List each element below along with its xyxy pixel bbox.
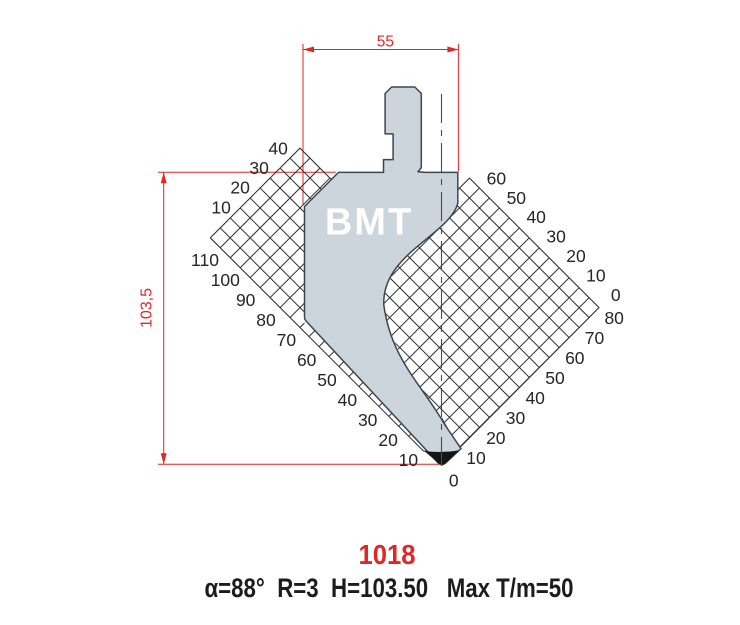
svg-text:40: 40 [525,388,545,408]
svg-text:80: 80 [604,308,624,328]
svg-text:110: 110 [191,250,219,270]
svg-text:70: 70 [585,328,605,348]
svg-text:30: 30 [358,410,378,430]
svg-text:80: 80 [256,310,276,330]
svg-text:103,5: 103,5 [139,288,156,328]
svg-text:10: 10 [466,448,486,468]
svg-text:20: 20 [378,430,398,450]
svg-text:10: 10 [211,197,231,217]
svg-text:40: 40 [268,139,288,159]
svg-text:1018: 1018 [359,539,416,570]
svg-text:60: 60 [565,348,585,368]
svg-text:α=88° R=3 H=103.50 Max T/m: α=88° R=3 H=103.50 Max T/m=50 [205,573,574,603]
svg-text:70: 70 [277,330,297,350]
svg-text:90: 90 [236,290,256,310]
svg-text:60: 60 [487,168,507,188]
svg-text:10: 10 [399,450,419,470]
svg-text:50: 50 [507,188,527,208]
svg-text:BMT: BMT [325,202,413,244]
svg-text:100: 100 [211,270,240,290]
svg-text:50: 50 [545,368,565,388]
svg-text:30: 30 [506,408,526,428]
svg-text:40: 40 [526,207,546,227]
svg-text:10: 10 [586,265,606,285]
svg-text:30: 30 [546,227,566,247]
svg-text:0: 0 [449,470,459,490]
svg-text:60: 60 [297,350,317,370]
svg-text:20: 20 [230,178,250,198]
svg-text:20: 20 [566,246,586,266]
svg-text:30: 30 [249,158,269,178]
svg-text:20: 20 [486,428,506,448]
svg-text:0: 0 [611,285,621,305]
svg-text:40: 40 [338,390,358,410]
svg-text:55: 55 [377,34,394,51]
svg-text:50: 50 [317,370,337,390]
